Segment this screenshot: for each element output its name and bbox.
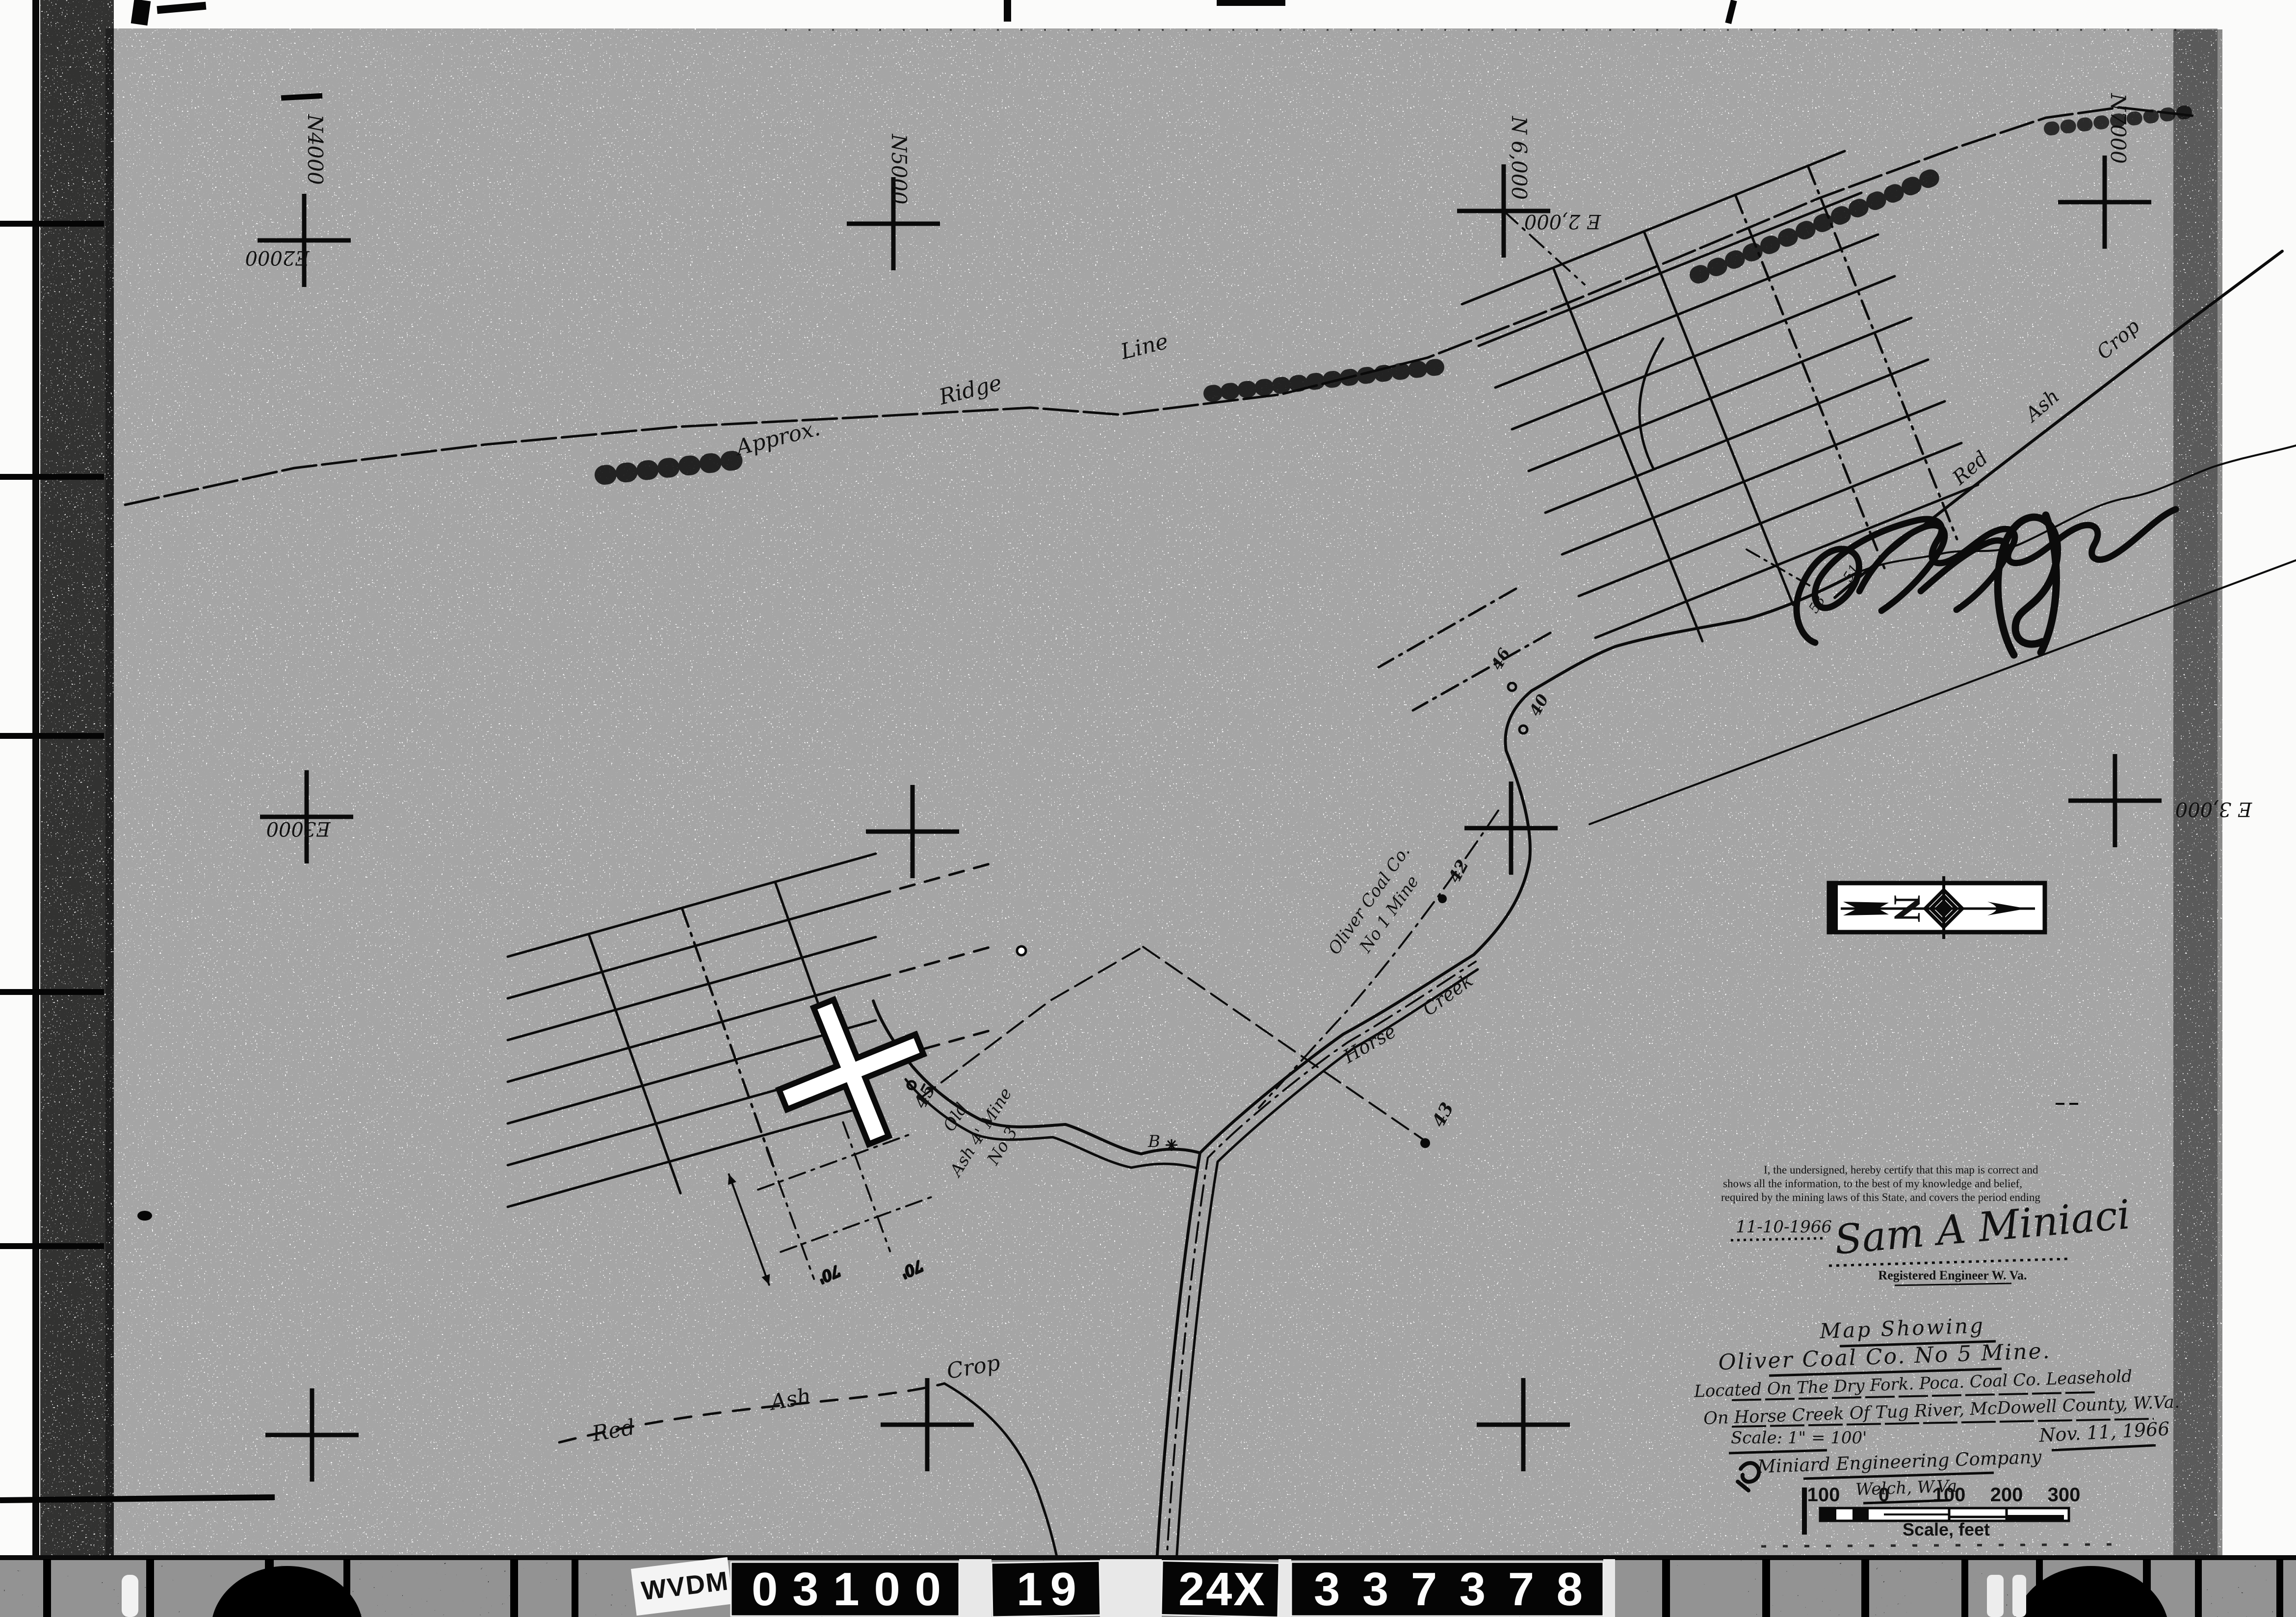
grid-label-e3000-left: E3000 <box>266 817 331 840</box>
grid-label-e3000-right: E 3,000 <box>2175 798 2252 820</box>
map-canvas: N4000 N5000 N 6,000 N7000 E2000 E 2,000 … <box>0 0 2296 1617</box>
cert-line1: I, the undersigned, hereby certify that … <box>1764 1164 2038 1176</box>
frame-code-2: 24X <box>1178 1563 1265 1616</box>
station-B: B <box>1148 1132 1160 1151</box>
cert-date: 11-10-1966 <box>1736 1217 1832 1237</box>
grid-label-e2000-left: E2000 <box>245 246 310 269</box>
film-edge-line <box>32 0 39 1558</box>
scale-number-3: 200 <box>1990 1484 2023 1506</box>
scale-caption: Scale, feet <box>1903 1519 1990 1539</box>
film-strip-bottom: WVDM 03100 19 24X 337378 <box>0 1555 2296 1617</box>
north-letter: N <box>1886 895 1929 922</box>
signer-title: Registered Engineer W. Va. <box>1878 1268 2027 1282</box>
grid-label-e2000-mid: E 2,000 <box>1524 210 1601 233</box>
scale-number-4: 300 <box>2048 1484 2081 1506</box>
title-scale-note: Scale: 1" = 100' <box>1731 1428 1867 1448</box>
grid-label-n6000: N 6,000 <box>1507 116 1531 200</box>
scale-number-0: 100 <box>1807 1484 1840 1506</box>
frame-code-boxes: 03100 19 24X 337378 <box>731 1561 1603 1617</box>
title-location: Welch, W.Va <box>1855 1476 1957 1499</box>
grid-label-n7000: N7000 <box>2106 93 2130 164</box>
cert-line3: required by the mining laws of this Stat… <box>1721 1191 2040 1203</box>
grid-label-n5000: N5000 <box>887 133 911 205</box>
station-B-star <box>1166 1139 1177 1151</box>
grid-label-n4000: N4000 <box>303 114 327 185</box>
cert-line2: shows all the information, to the best o… <box>1723 1177 2022 1190</box>
film-sprocket-hole <box>122 1575 138 1617</box>
north-arrow: N <box>1827 876 2045 939</box>
scanned-mine-map-sheet: N4000 N5000 N 6,000 N7000 E2000 E 2,000 … <box>0 0 2296 1617</box>
